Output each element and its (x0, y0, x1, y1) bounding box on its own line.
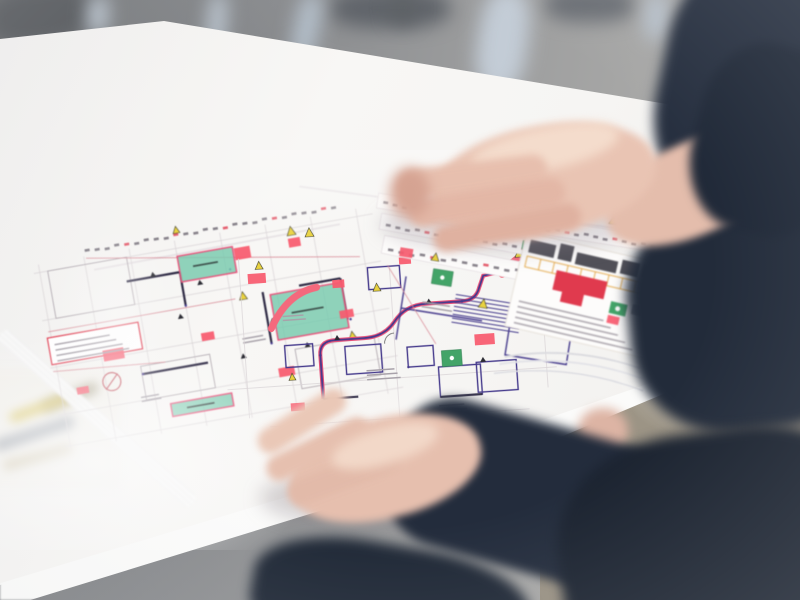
marker-redbox (288, 237, 301, 248)
marker-ytri (286, 226, 296, 236)
marker-redbox (76, 386, 89, 395)
marker-doortick (177, 313, 184, 319)
marker-doortick (197, 279, 204, 285)
marker-redbox (332, 279, 345, 288)
fingertip-shading (390, 168, 430, 218)
marker-ytri (172, 226, 180, 234)
curved-red-wall (269, 287, 320, 328)
marker-textlines (421, 301, 452, 312)
marker-redbox (247, 273, 266, 284)
marker-redbox (201, 331, 215, 341)
chair-leg (643, 0, 668, 41)
marker-room (171, 393, 234, 417)
chair-shadow-blob (390, 0, 416, 24)
marker-ytri (255, 261, 264, 270)
marker-textlines (282, 314, 305, 321)
marker-ytri (289, 373, 296, 380)
marker-greendot (431, 269, 453, 287)
chair-shadow-blob (545, 0, 635, 22)
marker-doortick (334, 335, 340, 340)
photo-scene (0, 0, 800, 600)
marker-textlines (141, 393, 162, 402)
